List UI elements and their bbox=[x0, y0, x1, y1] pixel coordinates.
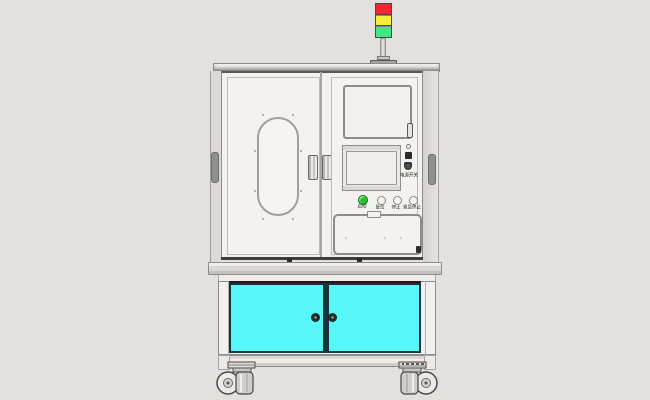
lower-frame-post-right bbox=[425, 281, 436, 355]
caster-wheel-right bbox=[394, 361, 440, 396]
screw-icon bbox=[262, 114, 264, 116]
lower-door-right[interactable] bbox=[327, 283, 421, 353]
lower-frame-post-left bbox=[218, 281, 229, 355]
tower-pole bbox=[380, 38, 386, 58]
caster-wheel-left bbox=[214, 361, 260, 396]
door-knob-left[interactable] bbox=[312, 314, 319, 321]
right-side-handle[interactable] bbox=[428, 154, 436, 185]
center-door-handle-left[interactable] bbox=[308, 155, 318, 180]
tower-light-yellow bbox=[376, 16, 391, 26]
key-switch[interactable] bbox=[404, 162, 412, 170]
access-tray-latch[interactable] bbox=[416, 246, 421, 253]
tray-mark bbox=[345, 237, 347, 239]
viewing-window bbox=[343, 85, 412, 139]
power-switch-label: 电源开关 bbox=[396, 173, 422, 178]
machine-render: 电源开关 启动 复位 停止 紧急停止 bbox=[0, 0, 650, 400]
oval-window bbox=[257, 117, 299, 216]
tower-light-red bbox=[376, 4, 391, 15]
screw-icon bbox=[262, 218, 264, 220]
panel-indicator-light bbox=[406, 144, 411, 149]
access-tray-panel[interactable] bbox=[333, 214, 422, 255]
screw-icon bbox=[254, 190, 256, 192]
tower-light-green bbox=[376, 27, 391, 37]
emergency-stop-button-label: 紧急停止 bbox=[399, 205, 425, 210]
power-rocker-switch[interactable] bbox=[405, 152, 412, 159]
screw-icon bbox=[300, 190, 302, 192]
upper-cabinet-bottom-edge bbox=[221, 257, 423, 260]
screw-icon bbox=[292, 218, 294, 220]
door-knob-right[interactable] bbox=[329, 314, 336, 321]
screw-icon bbox=[300, 150, 302, 152]
left-side-handle[interactable] bbox=[211, 152, 219, 183]
screw-icon bbox=[254, 150, 256, 152]
lower-door-left[interactable] bbox=[229, 283, 325, 353]
access-tray-tab bbox=[367, 211, 381, 218]
viewing-window-handle[interactable] bbox=[407, 123, 413, 138]
bench-top bbox=[208, 262, 442, 275]
hmi-screen[interactable] bbox=[346, 151, 397, 185]
tower-light-stack bbox=[375, 3, 392, 38]
tray-mark bbox=[400, 237, 402, 239]
tray-mark bbox=[384, 237, 386, 239]
screw-icon bbox=[292, 114, 294, 116]
